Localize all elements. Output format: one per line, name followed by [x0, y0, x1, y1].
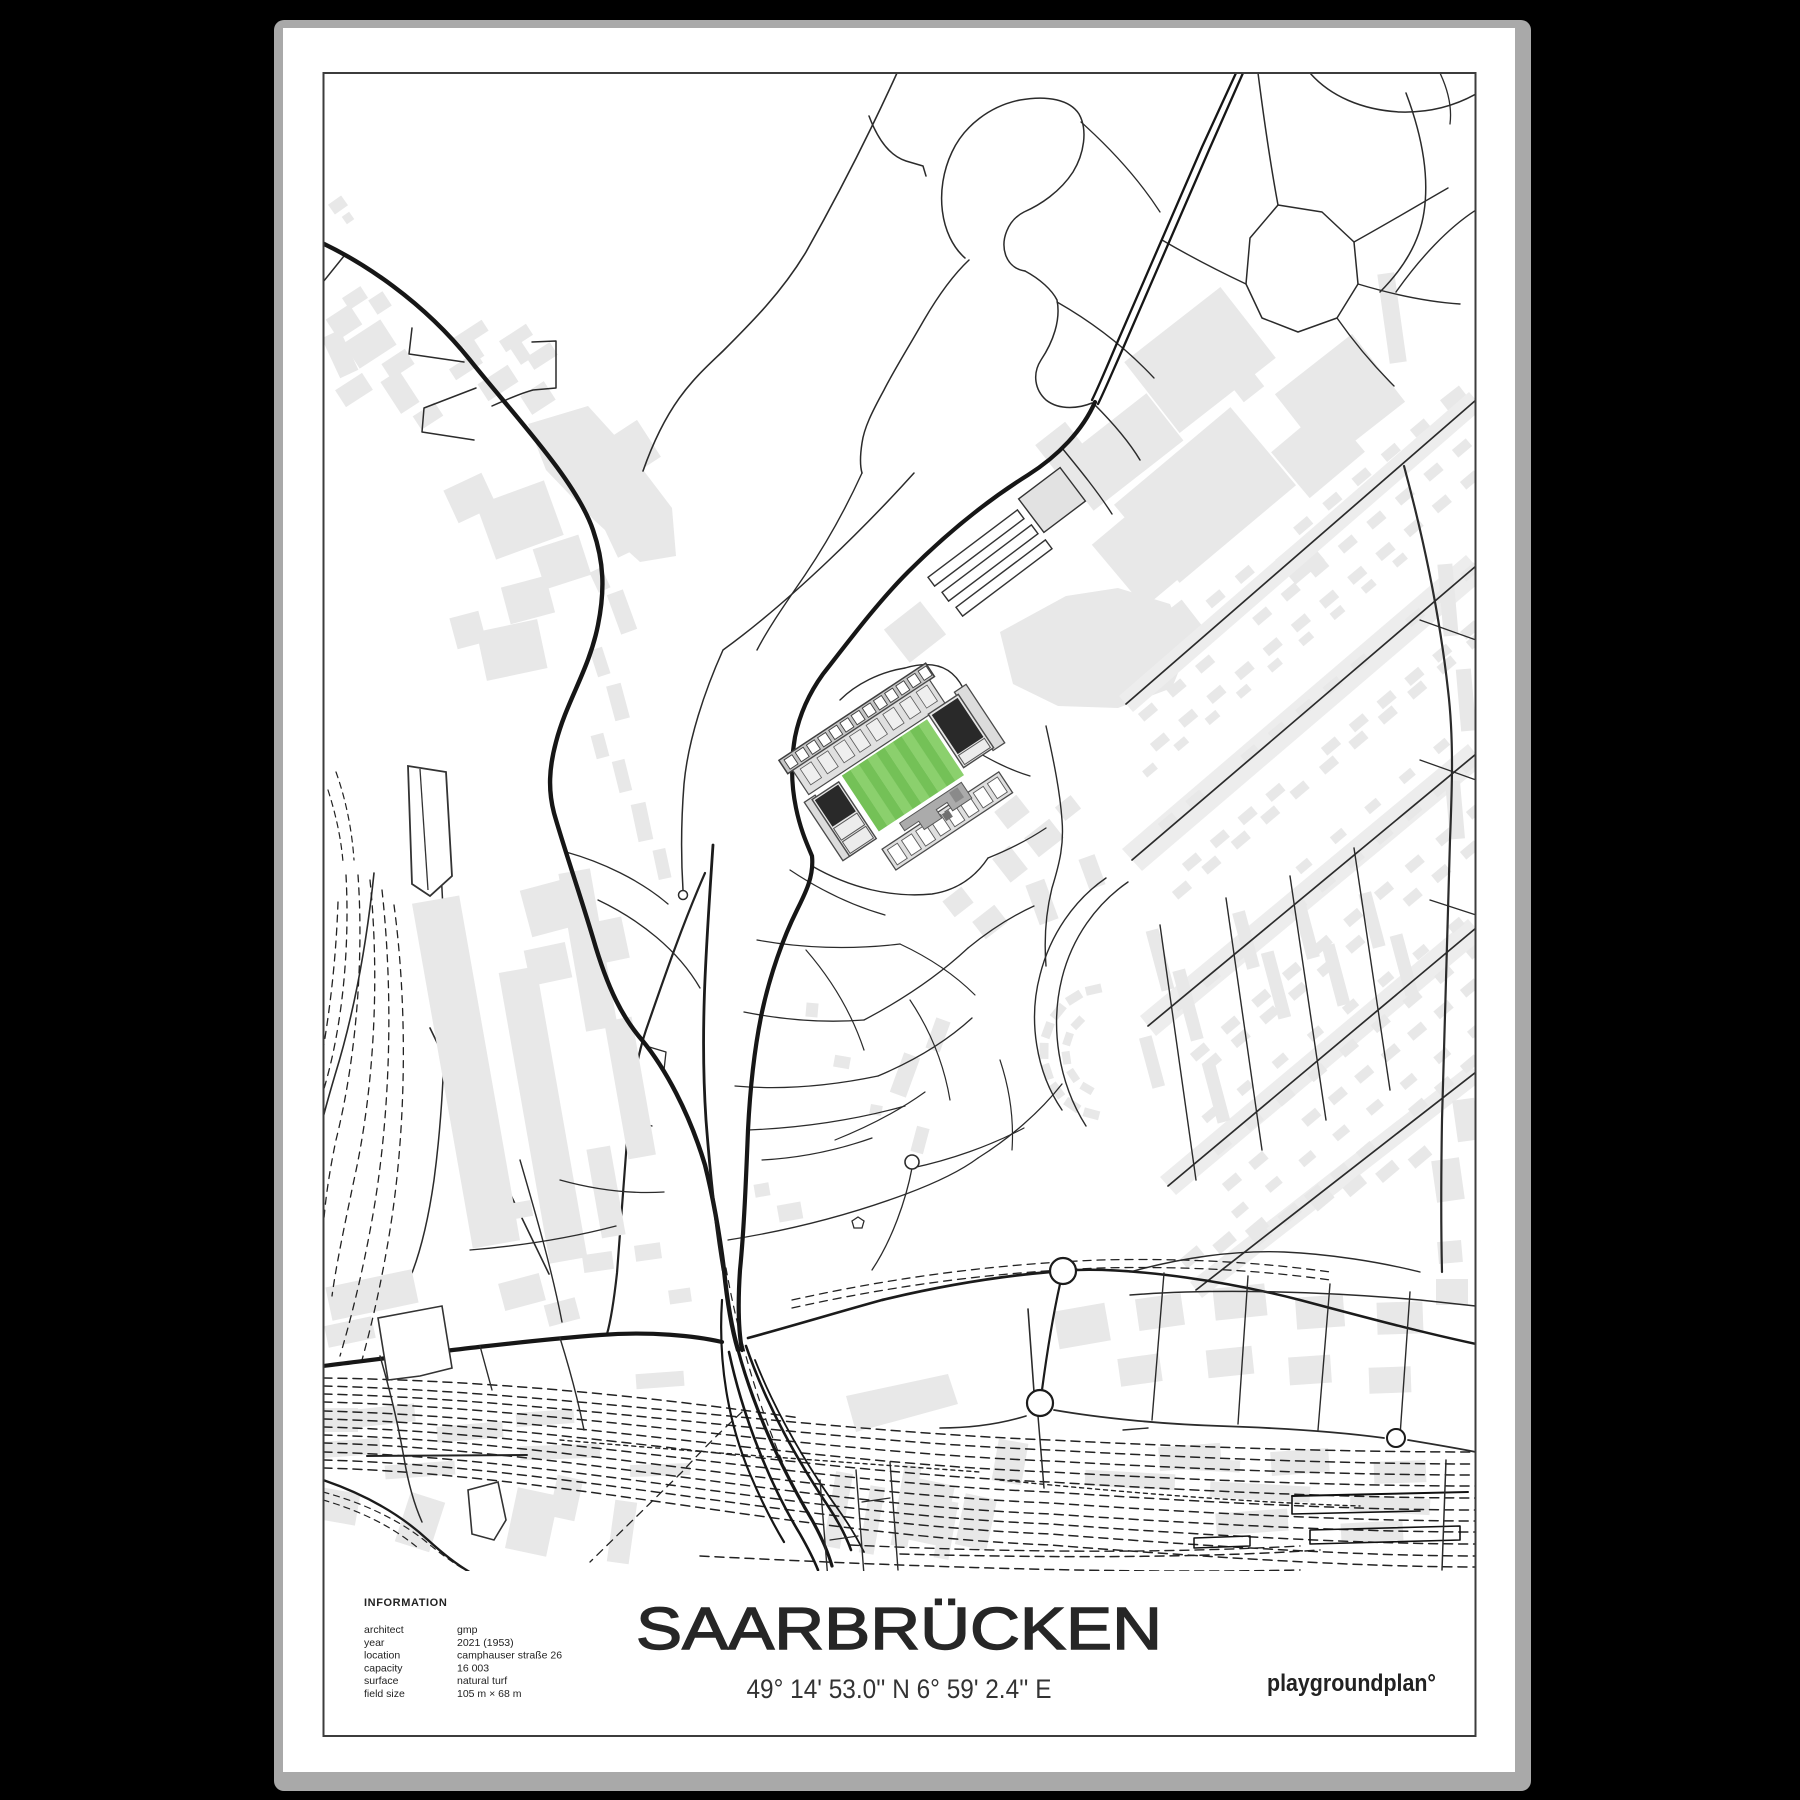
svg-text:SAARBRÜCKEN: SAARBRÜCKEN [636, 1596, 1162, 1662]
svg-text:field size: field size [364, 1688, 405, 1700]
svg-text:surface: surface [364, 1675, 399, 1687]
svg-text:camphauser straße 26: camphauser straße 26 [457, 1650, 562, 1662]
svg-text:INFORMATION: INFORMATION [364, 1597, 447, 1609]
svg-text:capacity: capacity [364, 1662, 403, 1674]
svg-text:year: year [364, 1637, 385, 1649]
svg-text:natural turf: natural turf [457, 1675, 507, 1687]
svg-text:location: location [364, 1650, 400, 1662]
svg-text:2021 (1953): 2021 (1953) [457, 1637, 514, 1649]
svg-text:playgroundplan°: playgroundplan° [1267, 1670, 1436, 1697]
svg-text:49° 14' 53.0'' N 6° 59' 2.4'': 49° 14' 53.0'' N 6° 59' 2.4'' E [747, 1674, 1052, 1704]
svg-text:architect: architect [364, 1624, 404, 1636]
svg-text:gmp: gmp [457, 1624, 478, 1636]
svg-text:16 003: 16 003 [457, 1662, 489, 1674]
svg-text:105 m × 68 m: 105 m × 68 m [457, 1688, 522, 1700]
